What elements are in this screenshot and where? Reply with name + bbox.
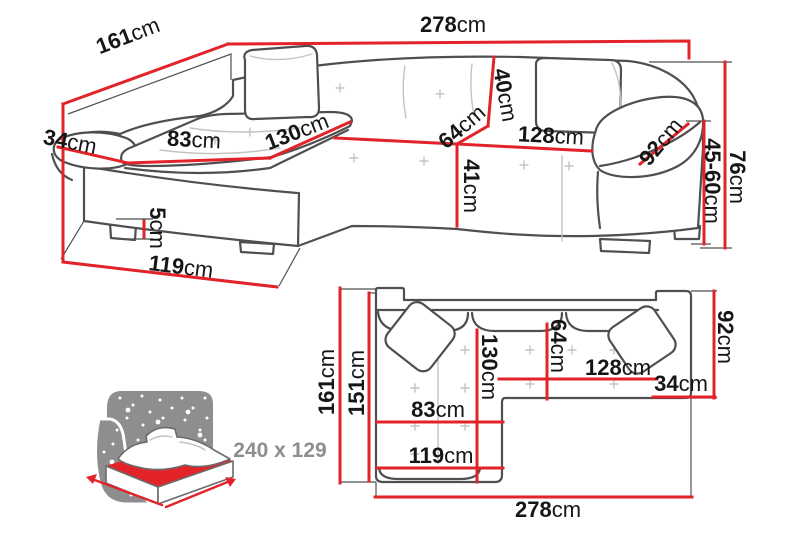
- dim-plan-seat-depth: 64cm: [547, 319, 569, 373]
- sleep-function-icon: [86, 391, 236, 507]
- dim-3d-leg-height: 5cm: [146, 207, 168, 249]
- dim-3d-total-height: 76cm: [726, 150, 748, 204]
- sofa-dimension-diagram: 161cm 278cm 40cm 64cm 128cm 92cm 41cm 76…: [0, 0, 800, 533]
- dim-3d-seat-height: 45-60cm: [701, 138, 723, 224]
- dim-plan-chaise-width: 119cm: [409, 445, 474, 467]
- dim-plan-seat-width: 128cm: [585, 357, 651, 379]
- chaise-side-edge: [298, 193, 299, 246]
- dim-plan-chaise-length: 130cm: [478, 334, 500, 400]
- wall-edge-line: [68, 54, 231, 114]
- dim-3d-chaise-seat-width: 83cm: [167, 128, 222, 153]
- sleeping-area-size-label: 240 x 129: [233, 439, 326, 463]
- dim-line-161: [63, 44, 228, 104]
- dim-plan-inner-depth: 151cm: [346, 350, 368, 416]
- dim-plan-armrest-depth: 92cm: [714, 310, 736, 364]
- diagram-artwork: [0, 0, 800, 533]
- dim-3d-total-width: 278cm: [420, 14, 486, 36]
- dim-plan-total-depth: 161cm: [316, 349, 338, 415]
- dim-plan-total-width: 278cm: [515, 499, 581, 521]
- dim-plan-armrest-width: 34cm: [654, 373, 708, 395]
- dim-plan-chaise-seat-width: 83cm: [411, 399, 465, 421]
- dim-3d-seat-width: 128cm: [517, 123, 584, 148]
- dim-3d-base-height: 41cm: [460, 159, 482, 213]
